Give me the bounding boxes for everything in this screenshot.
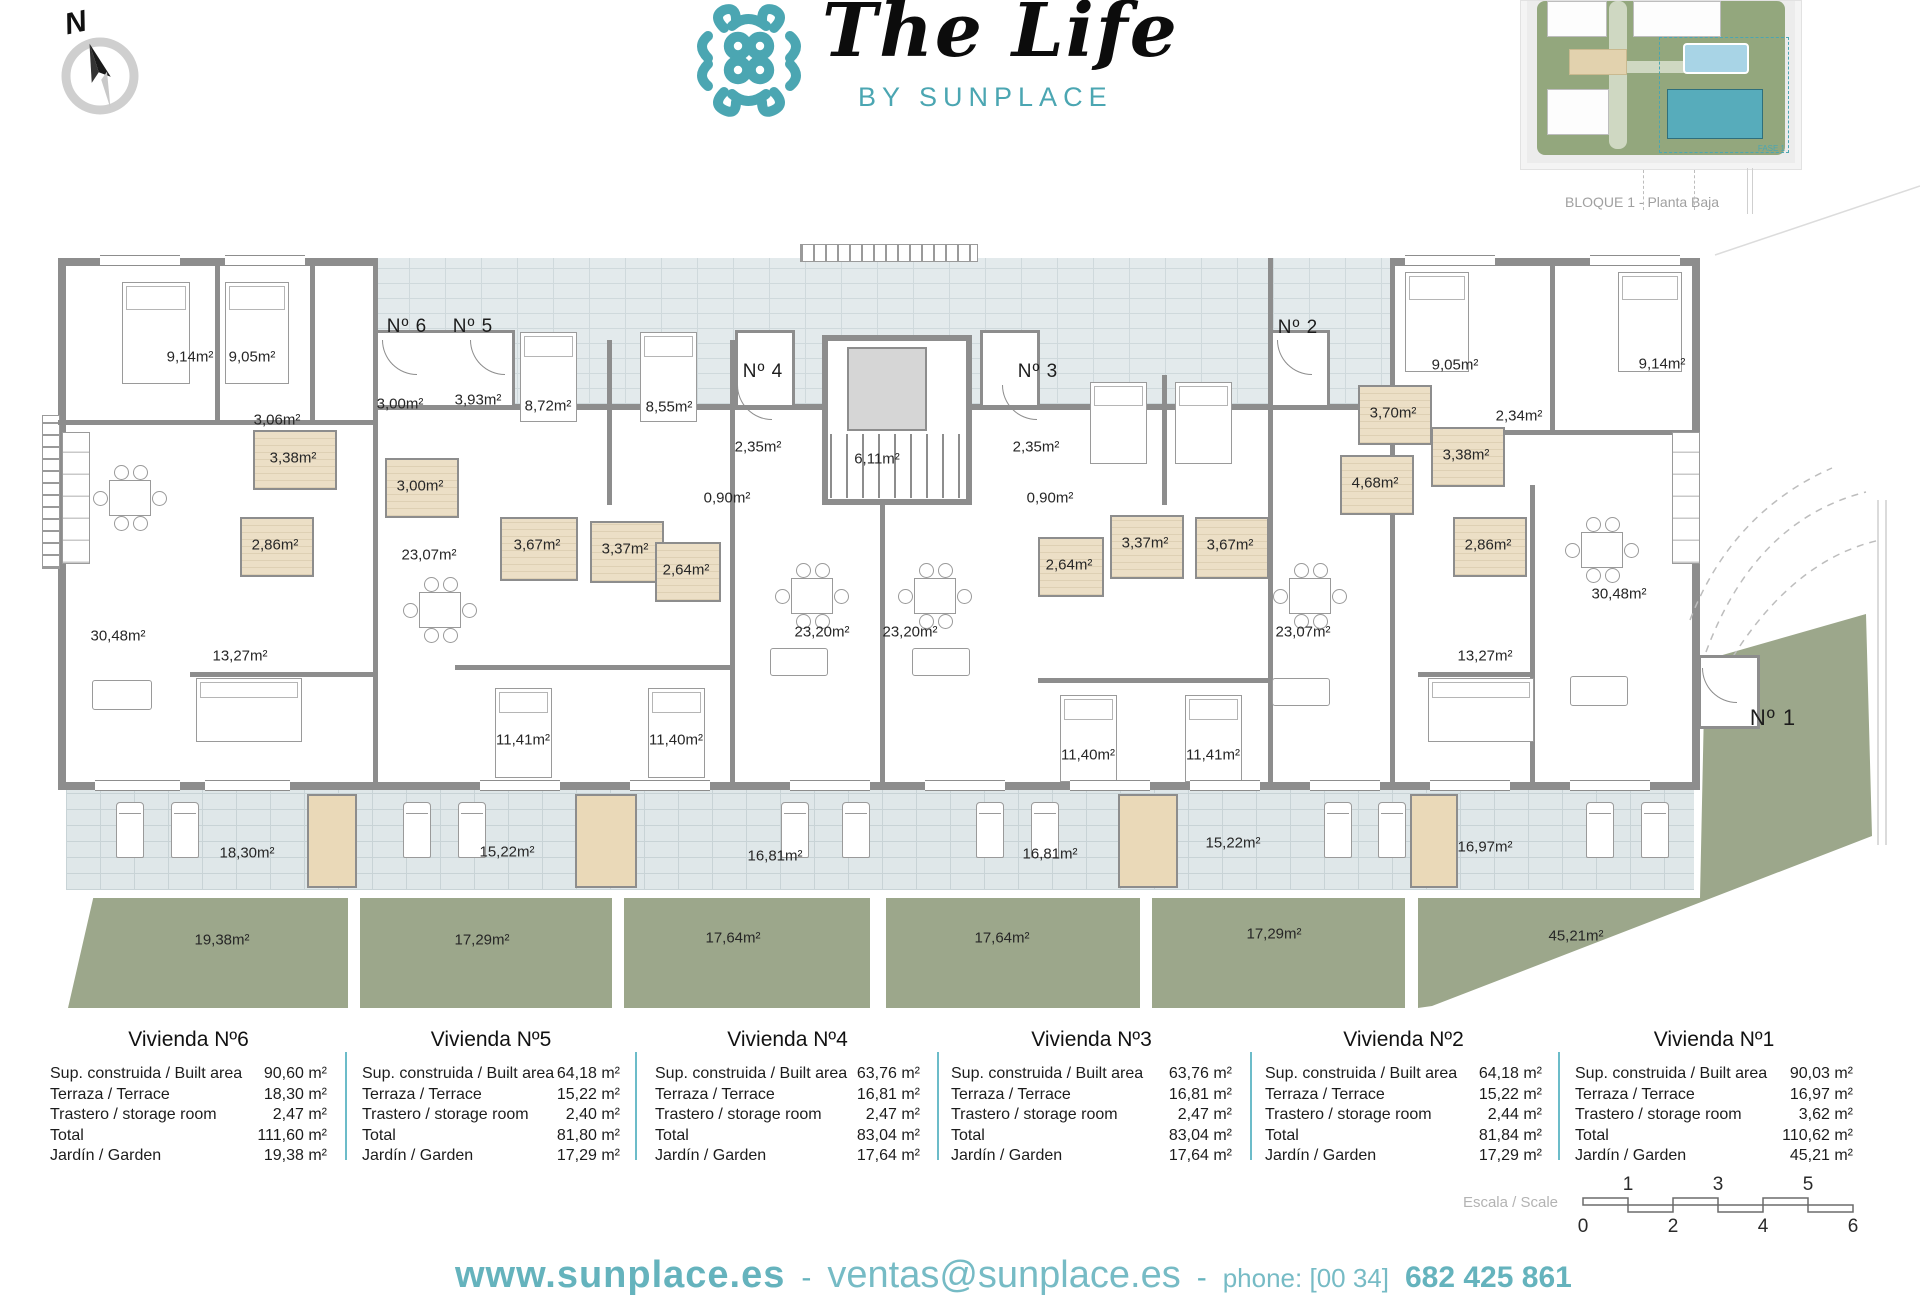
unit-summary-row: Jardín / Garden17,29 m² — [362, 1146, 620, 1167]
unit-summary-row: Jardín / Garden17,64 m² — [655, 1146, 920, 1167]
room-area-label: 8,72m² — [525, 398, 572, 415]
unit-summary-row: Jardín / Garden45,21 m² — [1575, 1146, 1853, 1167]
wall — [190, 672, 373, 677]
room-area-label: 4,68m² — [1352, 475, 1399, 492]
unit-summary-row: Total111,60 m² — [50, 1126, 327, 1147]
furniture-part — [898, 589, 913, 604]
furniture-part — [1332, 589, 1347, 604]
row-value: 2,47 m² — [273, 1105, 327, 1126]
room-area-label: 19,38m² — [194, 932, 249, 949]
wall — [58, 420, 373, 425]
room-area-label: 17,29m² — [454, 932, 509, 949]
furniture-part — [443, 577, 458, 592]
svg-text:0: 0 — [1578, 1216, 1589, 1237]
window — [1570, 780, 1650, 791]
furniture-part — [114, 516, 129, 531]
unit-summary-row: Total81,80 m² — [362, 1126, 620, 1147]
window — [95, 780, 180, 791]
room-area-label: 23,07m² — [1275, 624, 1330, 641]
row-value: 2,40 m² — [566, 1105, 620, 1126]
elevator — [847, 347, 927, 431]
furniture-part — [133, 465, 148, 480]
room-area-label: 3,37m² — [602, 541, 649, 558]
room-area-label: 45,21m² — [1548, 928, 1603, 945]
room-area-label: 13,27m² — [1457, 648, 1512, 665]
svg-text:5: 5 — [1803, 1174, 1814, 1195]
row-label: Trastero / storage room — [655, 1105, 822, 1126]
window — [790, 780, 870, 791]
unit-summary-row: Terraza / Terrace16,81 m² — [951, 1085, 1232, 1106]
row-value: 63,76 m² — [857, 1064, 920, 1085]
window — [1310, 780, 1380, 791]
room-area-label: 3,93m² — [455, 392, 502, 409]
sofa-icon — [1272, 678, 1330, 706]
sun-lounger-icon — [116, 802, 144, 858]
wall — [1390, 258, 1395, 790]
row-value: 17,29 m² — [1479, 1146, 1542, 1167]
svg-text:4: 4 — [1758, 1216, 1769, 1237]
dining-table-icon — [1274, 566, 1346, 626]
room-area-label: 17,64m² — [705, 930, 760, 947]
sofa-icon — [770, 648, 828, 676]
room-area-label: 17,29m² — [1246, 926, 1301, 943]
garden-plot — [624, 898, 870, 1008]
row-value: 17,29 m² — [557, 1146, 620, 1167]
wall — [373, 258, 378, 790]
unit-summary-row: Terraza / Terrace16,97 m² — [1575, 1085, 1853, 1106]
room-area-label: 11,40m² — [1061, 747, 1115, 764]
room-area-label: 2,86m² — [1465, 537, 1512, 554]
unit-summary-column: Vivienda Nº2Sup. construida / Built area… — [1265, 1028, 1542, 1167]
unit-summary-row: Terraza / Terrace16,81 m² — [655, 1085, 920, 1106]
room-area-label: 3,67m² — [1207, 537, 1254, 554]
unit-summary-row: Sup. construida / Built area63,76 m² — [951, 1064, 1232, 1085]
table-divider — [635, 1052, 637, 1160]
wall — [1530, 485, 1535, 790]
table-divider — [1558, 1052, 1560, 1160]
dining-table-icon — [94, 468, 166, 528]
unit-summary-column: Vivienda Nº1Sup. construida / Built area… — [1575, 1028, 1853, 1167]
row-value: 111,60 m² — [257, 1126, 327, 1147]
row-label: Sup. construida / Built area — [655, 1064, 847, 1085]
footer-separator: - — [801, 1261, 811, 1295]
unit-number-label: Nº 6 — [387, 316, 428, 338]
room-area-label: 2,34m² — [1496, 408, 1543, 425]
svg-text:1: 1 — [1623, 1174, 1634, 1195]
row-label: Trastero / storage room — [951, 1105, 1118, 1126]
row-label: Total — [1575, 1126, 1609, 1147]
unit-summary-column: Vivienda Nº4Sup. construida / Built area… — [655, 1028, 920, 1167]
furniture-part — [1313, 563, 1328, 578]
wall — [880, 505, 885, 790]
footer-website[interactable]: www.sunplace.es — [455, 1254, 785, 1297]
garden-plot — [68, 898, 348, 1008]
trellis — [42, 415, 60, 569]
unit-summary-title: Vivienda Nº5 — [362, 1028, 620, 1052]
footer-phone-number[interactable]: 682 425 861 — [1405, 1261, 1572, 1295]
unit-summary-row: Total110,62 m² — [1575, 1126, 1853, 1147]
wall — [1550, 258, 1555, 430]
window — [925, 780, 1005, 791]
wall — [310, 265, 315, 420]
balcony-railing — [800, 244, 978, 262]
svg-text:3: 3 — [1713, 1174, 1724, 1195]
unit-summary-title: Vivienda Nº1 — [1575, 1028, 1853, 1052]
room-area-label: 3,00m² — [377, 396, 424, 413]
room-area-label: 30,48m² — [1591, 586, 1646, 603]
row-label: Total — [655, 1126, 689, 1147]
room-area-label: 9,05m² — [1432, 357, 1479, 374]
furniture-part — [914, 578, 956, 614]
window — [1430, 780, 1510, 791]
row-label: Terraza / Terrace — [1575, 1085, 1695, 1106]
furniture-part — [957, 589, 972, 604]
unit-summary-row: Sup. construida / Built area63,76 m² — [655, 1064, 920, 1085]
room-area-label: 3,38m² — [1443, 447, 1490, 464]
furniture-part — [815, 563, 830, 578]
furniture-part — [938, 614, 953, 629]
unit-number-label: Nº 4 — [743, 361, 784, 383]
row-value: 83,04 m² — [1169, 1126, 1232, 1147]
unit-summary-row: Trastero / storage room3,62 m² — [1575, 1105, 1853, 1126]
garden-plot — [1152, 898, 1405, 1008]
room-area-label: 2,64m² — [1046, 557, 1093, 574]
bed-icon — [1185, 695, 1242, 782]
row-value: 17,64 m² — [857, 1146, 920, 1167]
furniture-part — [419, 592, 461, 628]
dining-table-icon — [899, 566, 971, 626]
row-label: Sup. construida / Built area — [50, 1064, 242, 1085]
unit-summary-row: Sup. construida / Built area90,60 m² — [50, 1064, 327, 1085]
sun-lounger-icon — [403, 802, 431, 858]
window — [1405, 255, 1495, 266]
table-divider — [345, 1052, 347, 1160]
footer-contact: www.sunplace.es - ventas@sunplace.es - p… — [455, 1254, 1572, 1297]
sofa-icon — [92, 680, 152, 710]
row-value: 2,47 m² — [866, 1105, 920, 1126]
room-area-label: 23,07m² — [401, 547, 456, 564]
row-value: 64,18 m² — [1479, 1064, 1542, 1085]
sofa-icon — [1570, 676, 1628, 706]
window — [480, 780, 560, 791]
unit-summary-row: Sup. construida / Built area64,18 m² — [1265, 1064, 1542, 1085]
furniture-part — [403, 603, 418, 618]
sun-lounger-icon — [1586, 802, 1614, 858]
row-label: Terraza / Terrace — [1265, 1085, 1385, 1106]
furniture-part — [791, 578, 833, 614]
row-value: 2,44 m² — [1488, 1105, 1542, 1126]
unit-summary-row: Trastero / storage room2,47 m² — [50, 1105, 327, 1126]
row-label: Jardín / Garden — [655, 1146, 766, 1167]
room-area-label: 3,67m² — [514, 537, 561, 554]
unit-summary-row: Sup. construida / Built area90,03 m² — [1575, 1064, 1853, 1085]
scale-label: Escala / Scale — [1430, 1194, 1558, 1211]
unit-summary-row: Trastero / storage room2,47 m² — [951, 1105, 1232, 1126]
unit-summary-row: Trastero / storage room2,44 m² — [1265, 1105, 1542, 1126]
row-label: Terraza / Terrace — [362, 1085, 482, 1106]
row-label: Jardín / Garden — [1265, 1146, 1376, 1167]
svg-text:2: 2 — [1668, 1216, 1679, 1237]
unit-summary-column: Vivienda Nº3Sup. construida / Built area… — [951, 1028, 1232, 1167]
row-label: Total — [50, 1126, 84, 1147]
footer-email[interactable]: ventas@sunplace.es — [827, 1254, 1180, 1297]
row-value: 16,97 m² — [1790, 1085, 1853, 1106]
row-label: Sup. construida / Built area — [362, 1064, 554, 1085]
row-value: 19,38 m² — [264, 1146, 327, 1167]
row-value: 81,84 m² — [1479, 1126, 1542, 1147]
furniture-part — [1586, 568, 1601, 583]
kitchen-counter — [1672, 432, 1700, 564]
furniture-part — [919, 563, 934, 578]
row-value: 81,80 m² — [557, 1126, 620, 1147]
unit-summary-row: Trastero / storage room2,40 m² — [362, 1105, 620, 1126]
room-area-label: 9,05m² — [229, 349, 276, 366]
room-area-label: 16,97m² — [1457, 839, 1512, 856]
furniture-part — [775, 589, 790, 604]
furniture-part — [424, 628, 439, 643]
bed-icon — [225, 282, 289, 384]
furniture-part — [109, 480, 151, 516]
room-area-label: 23,20m² — [882, 624, 937, 641]
furniture-part — [1273, 589, 1288, 604]
room-area-label: 3,37m² — [1122, 535, 1169, 552]
unit-summary-row: Terraza / Terrace18,30 m² — [50, 1085, 327, 1106]
room-area-label: 3,00m² — [397, 478, 444, 495]
furniture-part — [462, 603, 477, 618]
row-value: 64,18 m² — [557, 1064, 620, 1085]
row-label: Jardín / Garden — [1575, 1146, 1686, 1167]
room-area-label: 18,30m² — [219, 845, 274, 862]
sun-lounger-icon — [1378, 802, 1406, 858]
row-value: 18,30 m² — [264, 1085, 327, 1106]
unit-summary-row: Trastero / storage room2,47 m² — [655, 1105, 920, 1126]
unit-summary-row: Total83,04 m² — [951, 1126, 1232, 1147]
unit-summary-row: Jardín / Garden19,38 m² — [50, 1146, 327, 1167]
wall — [1162, 375, 1167, 505]
unit-summary-row: Terraza / Terrace15,22 m² — [362, 1085, 620, 1106]
bed-icon — [1090, 382, 1147, 464]
dining-table-icon — [776, 566, 848, 626]
unit-summary-title: Vivienda Nº6 — [50, 1028, 327, 1052]
row-value: 90,60 m² — [264, 1064, 327, 1085]
kitchen-counter — [62, 432, 90, 564]
room-area-label: 3,06m² — [254, 412, 301, 429]
row-value: 63,76 m² — [1169, 1064, 1232, 1085]
room-area-label: 16,81m² — [747, 848, 802, 865]
row-value: 15,22 m² — [557, 1085, 620, 1106]
row-label: Sup. construida / Built area — [1265, 1064, 1457, 1085]
row-value: 83,04 m² — [857, 1126, 920, 1147]
row-label: Total — [951, 1126, 985, 1147]
row-value: 15,22 m² — [1479, 1085, 1542, 1106]
furniture-part — [1581, 532, 1623, 568]
sun-lounger-icon — [171, 802, 199, 858]
svg-text:6: 6 — [1848, 1216, 1859, 1237]
room-area-label: 30,48m² — [90, 628, 145, 645]
room-area-label: 16,81m² — [1022, 846, 1077, 863]
row-label: Trastero / storage room — [1265, 1105, 1432, 1126]
room-area-label: 17,64m² — [974, 930, 1029, 947]
row-value: 110,62 m² — [1782, 1126, 1853, 1147]
room-area-label: 23,20m² — [794, 624, 849, 641]
bed-icon — [1175, 382, 1232, 464]
row-label: Total — [362, 1126, 396, 1147]
sun-lounger-icon — [976, 802, 1004, 858]
footer-phone-label: phone: [00 34] — [1223, 1263, 1389, 1294]
row-label: Jardín / Garden — [50, 1146, 161, 1167]
room-area-label: 0,90m² — [704, 490, 751, 507]
room-area-label: 15,22m² — [1205, 835, 1260, 852]
furniture-part — [1294, 563, 1309, 578]
bed-icon — [196, 678, 302, 742]
room-area-label: 11,41m² — [496, 732, 550, 749]
furniture-part — [1624, 543, 1639, 558]
furniture-part — [93, 491, 108, 506]
bed-icon — [122, 282, 190, 384]
wall — [215, 265, 220, 420]
row-value: 45,21 m² — [1790, 1146, 1853, 1167]
sun-lounger-icon — [1641, 802, 1669, 858]
unit-number-label: Nº 3 — [1018, 361, 1059, 383]
room-area-label: 9,14m² — [167, 349, 214, 366]
furniture-part — [133, 516, 148, 531]
bed-icon — [1428, 678, 1534, 742]
room-area-label: 2,35m² — [1013, 439, 1060, 456]
furniture-part — [796, 563, 811, 578]
wall — [1038, 678, 1268, 683]
furniture-part — [424, 577, 439, 592]
window — [1190, 780, 1260, 791]
footer-separator: - — [1197, 1261, 1207, 1295]
wall — [730, 340, 735, 790]
unit-summary-row: Total81,84 m² — [1265, 1126, 1542, 1147]
window — [225, 255, 305, 266]
row-label: Trastero / storage room — [50, 1105, 217, 1126]
row-label: Total — [1265, 1126, 1299, 1147]
sofa-icon — [912, 648, 970, 676]
table-divider — [937, 1052, 939, 1160]
unit-number-label: Nº 5 — [453, 316, 494, 338]
room-area-label: 2,64m² — [663, 562, 710, 579]
furniture-part — [1605, 568, 1620, 583]
bed-icon — [1060, 695, 1117, 782]
furniture-part — [1586, 517, 1601, 532]
row-label: Trastero / storage room — [362, 1105, 529, 1126]
row-label: Sup. construida / Built area — [1575, 1064, 1767, 1085]
furniture-part — [1289, 578, 1331, 614]
furniture-part — [834, 589, 849, 604]
wall — [1418, 672, 1530, 677]
furniture-part — [443, 628, 458, 643]
unit-summary-row: Terraza / Terrace15,22 m² — [1265, 1085, 1542, 1106]
furniture-part — [938, 563, 953, 578]
unit-summary-row: Jardín / Garden17,64 m² — [951, 1146, 1232, 1167]
room-area-label: 2,35m² — [735, 439, 782, 456]
window — [630, 780, 710, 791]
window — [1590, 255, 1680, 266]
window — [1070, 780, 1150, 791]
unit-summary-column: Vivienda Nº5Sup. construida / Built area… — [362, 1028, 620, 1167]
unit-number-label: Nº 2 — [1278, 317, 1319, 339]
unit-number-label: Nº 1 — [1750, 705, 1796, 731]
garden-plot — [886, 898, 1140, 1008]
garden-plot — [360, 898, 612, 1008]
storage-box — [1118, 794, 1178, 888]
furniture-part — [1565, 543, 1580, 558]
storage-box — [307, 794, 357, 888]
furniture-part — [114, 465, 129, 480]
room-area-label: 9,14m² — [1639, 356, 1686, 373]
unit-summary-title: Vivienda Nº3 — [951, 1028, 1232, 1052]
furniture-part — [152, 491, 167, 506]
row-value: 16,81 m² — [1169, 1085, 1232, 1106]
window — [205, 780, 290, 791]
unit-summary-row: Jardín / Garden17,29 m² — [1265, 1146, 1542, 1167]
storage-box — [575, 794, 637, 888]
room-area-label: 3,70m² — [1370, 405, 1417, 422]
room-area-label: 8,55m² — [646, 399, 693, 416]
unit-summary-row: Sup. construida / Built area64,18 m² — [362, 1064, 620, 1085]
row-value: 2,47 m² — [1178, 1105, 1232, 1126]
row-label: Terraza / Terrace — [951, 1085, 1071, 1106]
row-label: Jardín / Garden — [951, 1146, 1062, 1167]
dining-table-icon — [1566, 520, 1638, 580]
room-area-label: 2,86m² — [252, 537, 299, 554]
storage-box — [1410, 794, 1458, 888]
row-label: Jardín / Garden — [362, 1146, 473, 1167]
room-area-label: 11,40m² — [649, 732, 703, 749]
wall — [455, 665, 730, 670]
unit-summary-row: Total83,04 m² — [655, 1126, 920, 1147]
row-label: Sup. construida / Built area — [951, 1064, 1143, 1085]
scale-bar: 1350246 — [1560, 1170, 1880, 1245]
room-area-label: 6,11m² — [854, 451, 900, 468]
row-value: 3,62 m² — [1799, 1105, 1853, 1126]
room-area-label: 13,27m² — [212, 648, 267, 665]
row-value: 16,81 m² — [857, 1085, 920, 1106]
room-area-label: 3,38m² — [270, 450, 317, 467]
table-divider — [1250, 1052, 1252, 1160]
unit-summary-title: Vivienda Nº2 — [1265, 1028, 1542, 1052]
window — [100, 255, 180, 266]
row-label: Terraza / Terrace — [655, 1085, 775, 1106]
row-label: Trastero / storage room — [1575, 1105, 1742, 1126]
furniture-part — [1605, 517, 1620, 532]
unit-summary-title: Vivienda Nº4 — [655, 1028, 920, 1052]
row-label: Terraza / Terrace — [50, 1085, 170, 1106]
sun-lounger-icon — [842, 802, 870, 858]
room-area-label: 0,90m² — [1027, 490, 1074, 507]
row-value: 90,03 m² — [1790, 1064, 1853, 1085]
row-value: 17,64 m² — [1169, 1146, 1232, 1167]
room-area-label: 15,22m² — [479, 844, 534, 861]
wall — [607, 340, 612, 505]
unit-summary-column: Vivienda Nº6Sup. construida / Built area… — [50, 1028, 327, 1167]
sun-lounger-icon — [1324, 802, 1352, 858]
room-area-label: 11,41m² — [1186, 747, 1240, 764]
dining-table-icon — [404, 580, 476, 640]
